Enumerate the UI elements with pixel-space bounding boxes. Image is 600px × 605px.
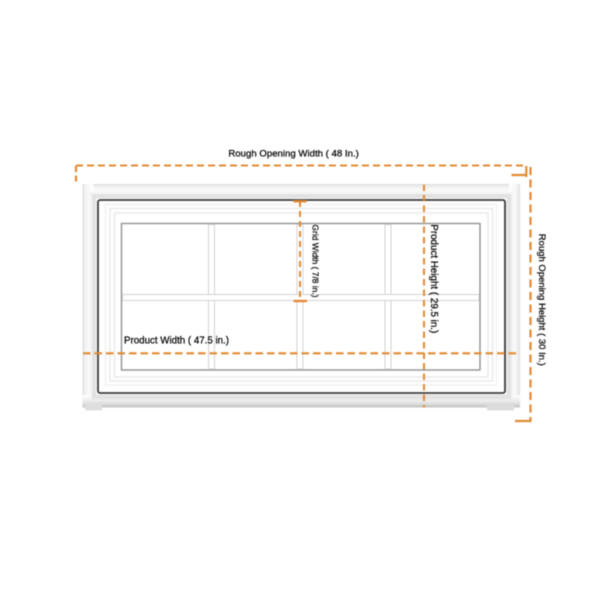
svg-text:Grid Width ( 7/8 in.): Grid Width ( 7/8 in.) [311, 225, 321, 298]
svg-text:Product Width ( 47.5 in.): Product Width ( 47.5 in.) [124, 336, 229, 347]
svg-text:Rough Opening Height ( 30 In.): Rough Opening Height ( 30 In.) [536, 234, 547, 366]
svg-text:Rough Opening Width ( 48 In.): Rough Opening Width ( 48 In.) [228, 149, 359, 160]
svg-text:Product Height ( 29.5 in.): Product Height ( 29.5 in.) [428, 224, 439, 333]
